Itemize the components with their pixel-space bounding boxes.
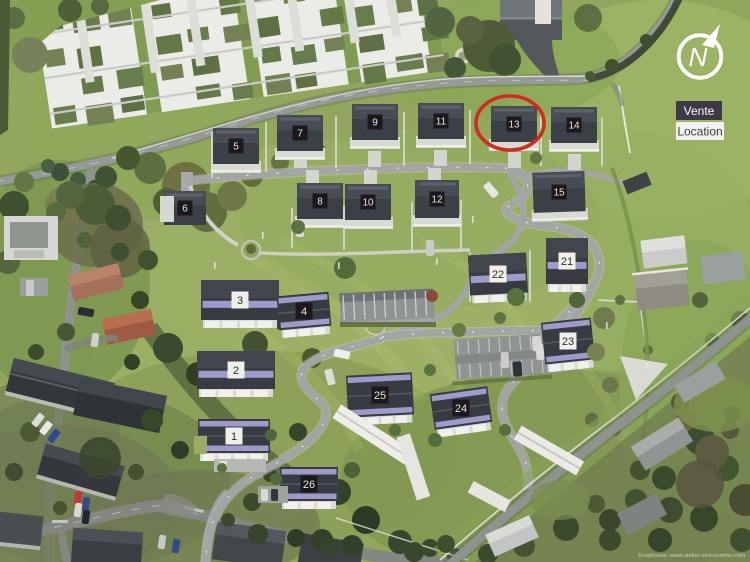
- svg-text:7: 7: [297, 129, 303, 140]
- svg-text:3: 3: [237, 295, 243, 307]
- svg-text:22: 22: [492, 269, 504, 281]
- svg-text:21: 21: [561, 256, 573, 268]
- svg-text:8: 8: [317, 197, 323, 208]
- svg-text:14: 14: [568, 121, 580, 132]
- svg-text:25: 25: [374, 390, 386, 402]
- svg-text:5: 5: [233, 142, 239, 153]
- svg-text:15: 15: [553, 188, 565, 199]
- svg-text:12: 12: [431, 195, 443, 206]
- svg-text:1: 1: [231, 431, 237, 443]
- svg-text:Vente: Vente: [684, 104, 715, 118]
- svg-text:4: 4: [301, 306, 307, 318]
- svg-text:11: 11: [436, 117, 447, 128]
- svg-text:26: 26: [303, 479, 315, 491]
- svg-text:9: 9: [372, 118, 378, 129]
- svg-text:N: N: [689, 42, 708, 72]
- svg-text:24: 24: [455, 403, 467, 415]
- svg-text:23: 23: [562, 336, 574, 348]
- svg-text:13: 13: [508, 120, 520, 131]
- svg-text:10: 10: [362, 198, 374, 209]
- svg-text:Graphisme: www.atelier-vert-po: Graphisme: www.atelier-vert-pomme.com: [638, 553, 745, 559]
- svg-text:6: 6: [182, 204, 188, 215]
- svg-text:2: 2: [233, 365, 239, 377]
- svg-text:Location: Location: [677, 125, 722, 139]
